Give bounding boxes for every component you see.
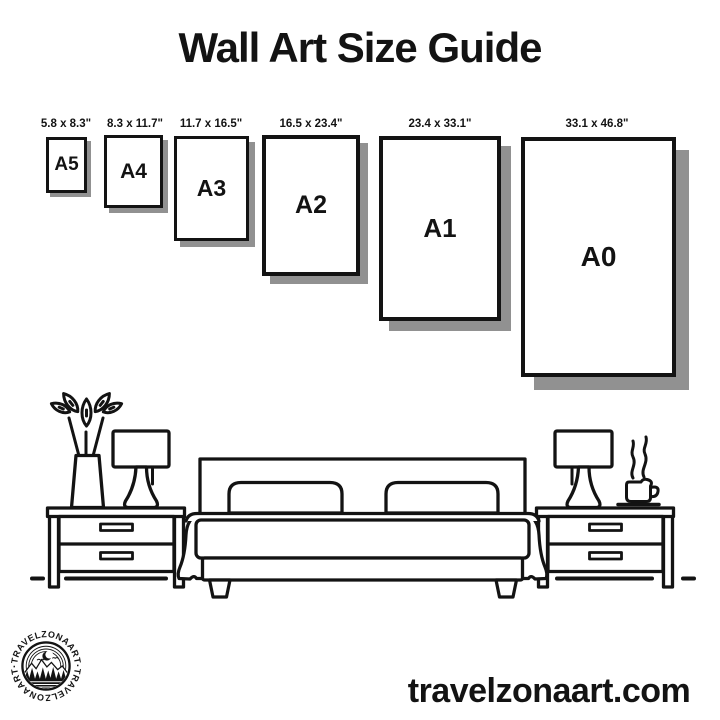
duvet [196,520,529,558]
size-label-a2: 16.5 x 23.4" [279,118,342,130]
frame-a1: A1 [379,136,501,321]
brand-logo: ·TRAVELZONAART· ·TRAVELZONAART· [1,621,91,711]
bed-icon [178,459,547,597]
bed-foot-left [210,580,231,597]
page-title: Wall Art Size Guide [0,24,720,72]
bed-foot-right [496,580,517,597]
bedroom-illustration [0,380,720,610]
right-table-lamp-icon [555,431,612,508]
frame-a5: A5 [46,137,87,193]
size-label-a4: 8.3 x 11.7" [107,118,163,130]
pillow-right [386,483,498,514]
size-label-a5: 5.8 x 8.3" [41,118,91,130]
frame-a2: A2 [262,135,360,276]
bed-base [203,558,523,580]
left-nightstand-icon [32,508,185,587]
size-label-a3: 11.7 x 16.5" [180,118,242,130]
size-label-a0: 33.1 x 46.8" [565,118,628,130]
size-label-a1: 23.4 x 33.1" [408,118,471,130]
website-url: travelzonaart.com [408,672,691,711]
frame-a3: A3 [174,136,249,241]
size-guide-poster: Wall Art Size Guide 5.8 x 8.3" 8.3 x 11.… [0,0,720,720]
frame-a4: A4 [104,135,163,208]
left-table-lamp-icon [113,431,169,508]
right-nightstand-icon [537,508,695,587]
pillow-left [229,483,342,514]
frame-a0: A0 [521,137,676,377]
coffee-cup-icon [618,437,659,505]
